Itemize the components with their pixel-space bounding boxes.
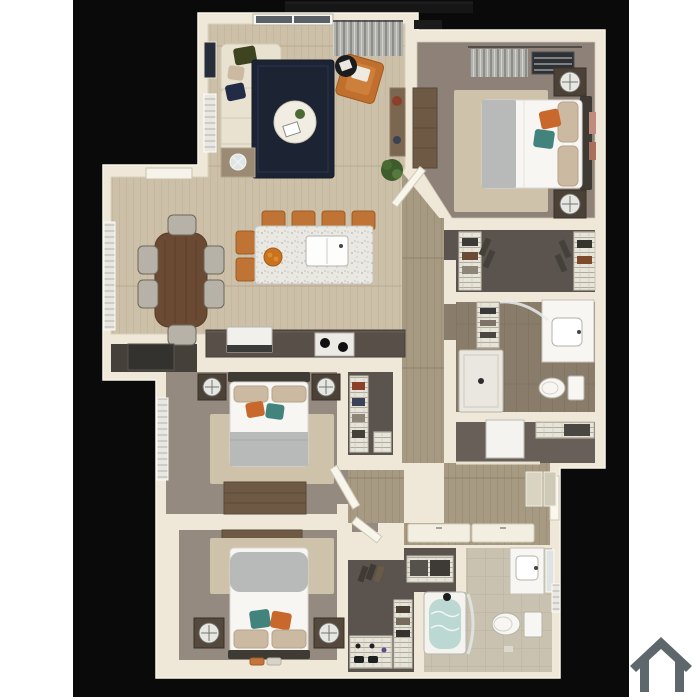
linen-closet: [407, 556, 453, 582]
shower-head: [443, 593, 451, 601]
basket: [410, 560, 428, 576]
wall-panel-window: [146, 168, 192, 179]
queen-bed: [228, 548, 310, 659]
linens: [480, 320, 496, 326]
window-drapes: [470, 49, 528, 77]
balcony: [285, 1, 473, 13]
nightstand: [554, 68, 586, 96]
teal-pillow: [265, 403, 285, 420]
folded-clothes: [396, 618, 410, 625]
nightstand: [194, 618, 224, 648]
bar-stool: [236, 258, 255, 281]
queen-bed: [228, 372, 310, 466]
nightstand: [554, 190, 586, 218]
wall-vent-notch: [414, 20, 442, 29]
wire-shelf: [374, 432, 391, 452]
window: [552, 584, 560, 612]
burner: [338, 342, 348, 352]
blinds-window: [157, 398, 168, 480]
dining-chair: [168, 215, 196, 235]
hall-branch: [348, 470, 404, 523]
linens: [480, 308, 496, 314]
side-window: [204, 94, 216, 152]
refrigerator: [128, 344, 174, 370]
sliding-door: [408, 524, 470, 542]
faucet: [534, 566, 538, 570]
slippers: [267, 658, 281, 665]
teal-pillow: [249, 609, 271, 630]
wall-art: [589, 142, 596, 160]
console-object: [393, 136, 401, 144]
tub-water: [429, 599, 461, 649]
shoe: [382, 648, 387, 653]
floor-item: [504, 646, 513, 652]
linens: [480, 332, 496, 338]
floorplan-svg: [0, 0, 700, 700]
walk-in-shower: [459, 350, 503, 412]
folded-clothes: [352, 430, 365, 438]
shoe: [356, 644, 361, 649]
bar-stool: [236, 231, 255, 254]
orange-pillow: [245, 401, 265, 419]
bath-door-opening: [444, 304, 456, 340]
headboard: [228, 372, 310, 382]
folded-clothes: [352, 414, 365, 422]
burner: [320, 338, 330, 348]
pillow: [234, 386, 268, 402]
faucet: [339, 244, 343, 248]
house-right-leg: [675, 659, 684, 692]
folded-clothes: [462, 252, 478, 260]
nightstand: [314, 618, 344, 648]
teal-pillow: [533, 129, 555, 150]
island-sink: [306, 236, 348, 266]
dresser: [224, 482, 306, 514]
folded-clothes: [396, 606, 410, 613]
coffee-table: [274, 101, 316, 143]
pillow: [558, 146, 578, 186]
shoe-pair: [368, 656, 378, 663]
shoe-shelf: [350, 636, 392, 668]
pillow: [272, 386, 306, 402]
folded-clothes: [577, 240, 592, 248]
shoe-pair: [354, 656, 364, 663]
toilet-bowl: [539, 378, 565, 398]
table-plant: [295, 109, 305, 119]
door-mat: [544, 472, 556, 506]
gray-blanket: [482, 100, 516, 188]
shoe: [370, 644, 375, 649]
fruit: [274, 257, 279, 262]
basket: [430, 560, 450, 576]
orange-pillow: [270, 610, 293, 630]
slippers: [250, 658, 264, 665]
folded-clothes: [462, 238, 478, 246]
house-left-leg: [640, 659, 649, 692]
shelf-baskets: [564, 424, 590, 436]
water-heater: [486, 420, 524, 458]
folded-clothes: [577, 256, 592, 264]
curtains: [333, 20, 403, 56]
dining-chair: [168, 325, 196, 345]
door-mat: [526, 472, 542, 506]
floorplan-image: [0, 0, 700, 700]
faucet: [577, 330, 581, 334]
fruit-bowl: [264, 248, 282, 266]
gray-blanket: [230, 552, 308, 592]
pillow: [558, 102, 578, 142]
nightstand: [312, 374, 340, 400]
toilet-tank: [568, 376, 584, 400]
pillow: [272, 630, 306, 648]
sliding-door: [472, 524, 534, 542]
blinds-window: [104, 222, 115, 330]
shower-drain: [478, 378, 484, 384]
wall-art: [589, 112, 596, 134]
vanity: [510, 548, 544, 594]
hall-neck: [417, 340, 444, 372]
toilet-bowl: [492, 613, 520, 635]
bathtub-shower: [424, 592, 466, 654]
dining-chair: [204, 280, 224, 308]
dining-chair: [138, 280, 158, 308]
tan-pillow: [227, 65, 245, 81]
plant-leaf: [392, 169, 402, 179]
fruit: [268, 253, 273, 258]
folded-clothes: [352, 398, 365, 406]
potted-plant: [381, 159, 403, 181]
folded-clothes: [462, 266, 478, 274]
dining-chair: [138, 246, 158, 274]
folded-clothes: [396, 630, 410, 637]
plant-leaf: [382, 160, 392, 170]
nightstand: [198, 374, 226, 400]
closet-door-opening: [444, 230, 456, 260]
queen-bed: [482, 96, 592, 190]
range: [315, 333, 354, 356]
picture-frame: [204, 42, 216, 78]
gray-blanket: [230, 432, 308, 466]
dining-table: [155, 233, 207, 327]
toilet-tank: [524, 612, 542, 637]
pillow: [234, 630, 268, 648]
console-vase: [392, 96, 402, 106]
folded-clothes: [352, 382, 365, 390]
glass-side-table: [221, 148, 255, 177]
appliance-handle: [227, 345, 272, 352]
dining-chair: [204, 246, 224, 274]
vanity: [542, 300, 594, 362]
